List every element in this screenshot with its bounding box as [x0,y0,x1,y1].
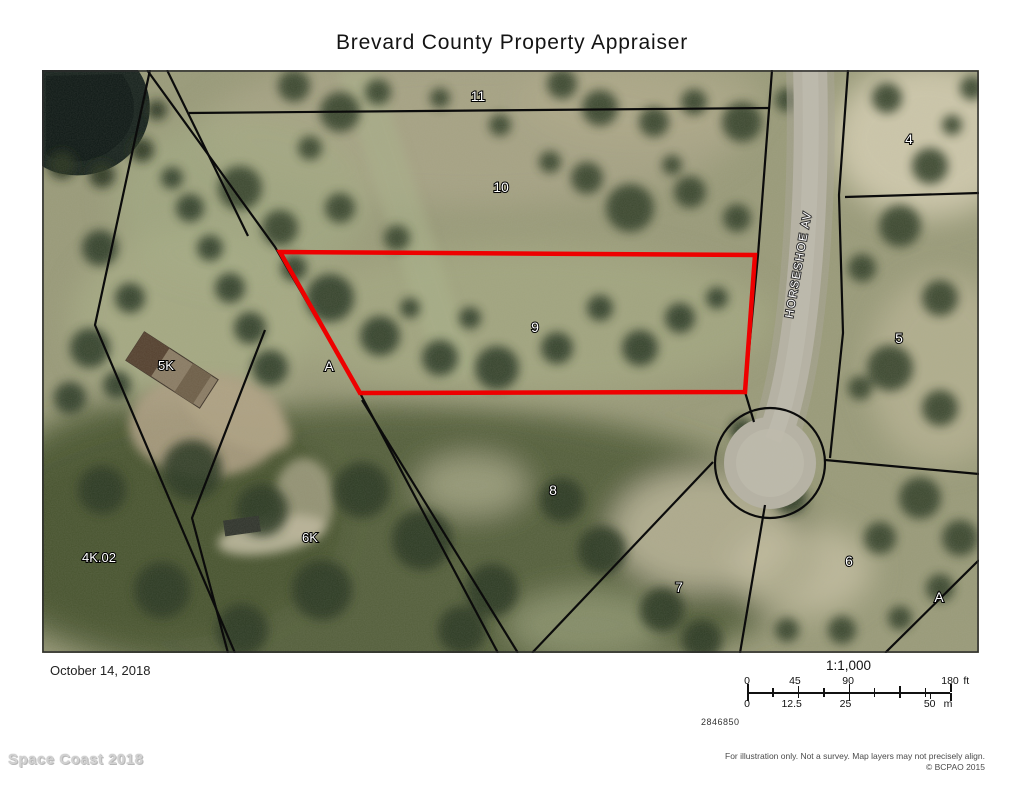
parcel-label-a-east: A [934,589,944,605]
m-tick-25: 25 [840,698,852,710]
map-sheet-number: 2846850 [701,717,740,727]
m-tick-50: 50 [924,698,936,710]
copyright-text: © BCPAO 2015 [725,762,985,773]
property-appraiser-map-page: { "title": "Brevard County Property Appr… [0,0,1024,791]
m-tick-0: 0 [744,698,750,710]
scale-ratio: 1:1,000 [747,658,950,673]
ft-unit: ft [963,675,969,687]
parcel-label-10: 10 [493,179,509,195]
m-unit: m [944,698,953,710]
parcel-label-4k02: 4K.02 [82,550,116,565]
scale-bar: 1:1,000 0 45 90 180 ft 0 12.5 25 50 m [747,658,950,718]
parcel-label-7: 7 [675,579,683,595]
page-title: Brevard County Property Appraiser [0,31,1024,55]
aerial-parcel-map: 11 10 9 A 5K 4 5 8 7 6 A 6K 4K.02 HORSES… [42,70,979,653]
parcel-label-4: 4 [905,131,913,147]
scale-bar-line [747,692,950,693]
parcel-label-6: 6 [845,553,853,569]
parcel-label-11: 11 [471,88,486,104]
map-date: October 14, 2018 [50,663,150,678]
space-coast-watermark: Space Coast 2018 [8,751,144,768]
scale-meter-labels: 0 12.5 25 50 m [747,698,950,710]
map-image: 11 10 9 A 5K 4 5 8 7 6 A 6K 4K.02 HORSES… [42,70,979,653]
parcel-label-9: 9 [531,319,539,335]
parcel-label-5k: 5K [158,358,174,373]
disclaimer: For illustration only. Not a survey. Map… [725,751,985,772]
m-tick-12-5: 12.5 [781,698,801,710]
disclaimer-text: For illustration only. Not a survey. Map… [725,751,985,762]
parcel-label-8: 8 [549,482,557,498]
parcel-label-5: 5 [895,330,903,346]
parcel-label-a-west: A [324,358,334,374]
parcel-label-6k: 6K [302,530,318,545]
aerial-imagery: 11 10 9 A 5K 4 5 8 7 6 A 6K 4K.02 HORSES… [42,70,979,653]
